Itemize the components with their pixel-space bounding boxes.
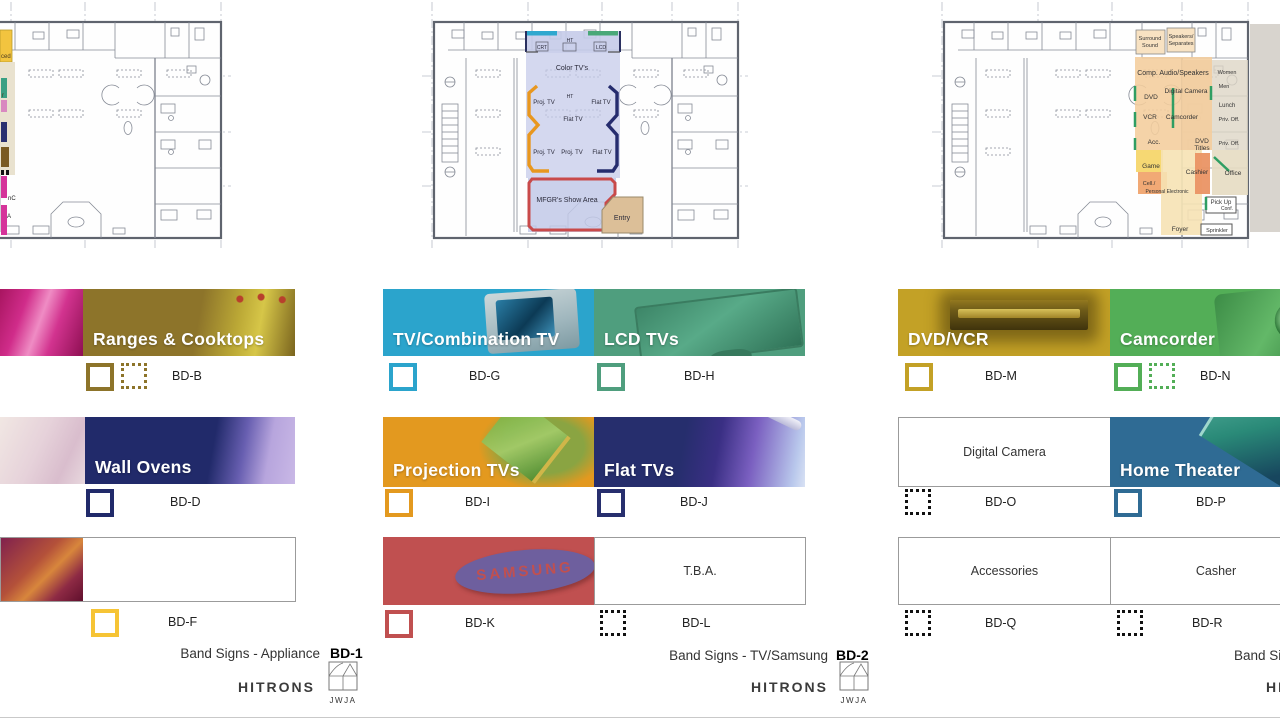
band-title: TV/Combination TV [393,329,559,350]
swatch-solid-bd-n [1114,363,1142,391]
lcd-band-body: LCD TVs [594,289,805,356]
plan-label: MFGR's Show Area [536,197,597,204]
band-sign-dvd-vcr: DVD/VCR [898,289,1110,356]
swatch-dotted-bd-o [905,489,931,515]
plan-label: DVD [1195,138,1209,145]
plan-label: Separates [1168,41,1193,47]
band-title: Ranges & Cooktops [93,329,264,350]
plan-label: r [2,93,4,99]
samsung-band-body: SAMSUNG [383,537,594,605]
band-sign-casher: Casher [1110,537,1280,605]
hitrons-logotype-clipped: HI [1266,679,1280,695]
swatch-solid-bd-p [1114,489,1142,517]
plan-label: Color TV's [556,65,589,72]
ranges-photo [0,289,83,356]
band-sign-blank [0,537,296,602]
swatch-solid-bd-k [385,610,413,638]
band-code: BD-J [680,495,708,509]
dvd-player-photo [950,300,1088,330]
hitrons-logotype: HITRONS [751,679,828,695]
dishwasher-photo [0,537,83,602]
swatch-solid-bd-b [86,363,114,391]
plan-label: DVD [1144,94,1158,101]
swatch-solid-bd-f [91,609,119,637]
jwja-logo-mark [328,661,358,691]
band-code: BD-B [172,369,202,383]
plan-label: Game [1142,163,1160,170]
plan-label: Lunch [1219,103,1235,109]
sheet-title-tv-samsung: Band Signs - TV/Samsung [600,648,828,663]
jwja-logo-mark [839,661,869,691]
band-sign-wall-ovens: Wall Ovens [0,417,295,484]
swatch-solid-bd-m [905,363,933,391]
oven-control-photo [0,417,85,484]
swatch-dotted-bd-l [600,610,626,636]
plan-label: Digital Camera [1165,88,1208,95]
projection-band-body: Projection TVs [383,417,594,487]
plan-label: Speakers/ [1169,34,1194,40]
band-sign-ranges-cooktops: Ranges & Cooktops [0,289,295,356]
band-sign-tba: T.B.A. [594,537,806,605]
swatch-dotted-bd-b [121,363,147,389]
band-title: Projection TVs [393,460,520,481]
band-code: BD-O [985,495,1016,509]
swatch-dotted-bd-n [1149,363,1175,389]
band-sign-digital-camera: Digital Camera [898,417,1111,487]
plan-label: Office [1225,170,1242,177]
band-title: Flat TVs [604,460,674,481]
sheet-bottom-rule [0,717,1280,718]
band-code: BD-K [465,616,495,630]
plan-label: Flat TV [591,100,610,106]
band-code: BD-I [465,495,490,509]
plan-label: A [7,214,11,220]
samsung-logo-text: SAMSUNG [476,559,575,584]
plan-label: Men [1219,84,1230,90]
plan-label: LCD [596,45,606,51]
sheet-title-appliance: Band Signs - Appliance [0,646,320,661]
band-title: Wall Ovens [95,457,192,478]
floor-plan-appliance: ced r nC A [0,0,237,265]
tv-comb-band-body: TV/Combination TV [383,289,594,356]
camcorder-photo [1214,289,1280,356]
plan-label: Acc. [1148,139,1161,146]
flat-band-body: Flat TVs [594,417,805,487]
tba-label: T.B.A. [595,538,805,604]
plan-label: Foyer [1172,226,1189,233]
band-code: BD-H [684,369,715,383]
ranges-band-body: Ranges & Cooktops [83,289,295,356]
sheet-title-av-clipped: Band Sig [1234,648,1280,663]
plan-label: VCR [1143,114,1157,121]
samsung-logo: SAMSUNG [453,544,594,599]
plan-label: Titles [1194,145,1210,152]
digital-camera-label: Digital Camera [899,418,1110,486]
band-code: BD-N [1200,369,1231,383]
plan-label: Proj. TV [533,150,555,156]
floor-plan-av: Surround Sound Speakers/ Separates Comp.… [930,0,1280,265]
band-title: Home Theater [1120,460,1240,481]
band-sign-samsung: SAMSUNG [383,537,594,605]
swatch-solid-bd-i [385,489,413,517]
plan-label: Flat TV [563,117,582,123]
swatch-solid-bd-h [597,363,625,391]
band-code: BD-M [985,369,1017,383]
plan-label: ced [1,54,11,60]
band-sign-projection-tvs: Projection TVs [383,417,594,487]
plan-label: Sound [1142,43,1158,49]
home-theater-band-body: Home Theater [1110,417,1280,487]
band-code: BD-D [170,495,201,509]
plan-label: Priv. Off. [1219,117,1240,123]
jwja-logo: JWJA [326,661,360,705]
sheet-code-appliance: BD-1 [330,645,363,661]
band-sign-lcd-tvs: LCD TVs [594,289,805,356]
plan-label: Personal Electronic [1145,189,1189,195]
band-code: BD-G [469,369,500,383]
plan-label: Surround [1139,36,1162,42]
band-code: BD-P [1196,495,1226,509]
band-title: LCD TVs [604,329,679,350]
plan-label: Proj. TV [533,100,555,106]
band-sign-camcorder: Camcorder [1110,289,1280,356]
band-code: BD-F [168,615,197,629]
swatch-dotted-bd-q [905,610,931,636]
band-code: BD-R [1192,616,1223,630]
plan-label: Proj. TV [561,150,583,156]
plan-label: Priv. Off. [1219,141,1240,147]
jwja-logo-text: JWJA [837,696,871,705]
band-code: BD-Q [985,616,1016,630]
casher-label: Casher [1111,538,1280,604]
plan-label: Entry [614,215,631,222]
hitrons-logotype: HITRONS [238,679,315,695]
plan-label: HT [567,38,574,44]
jwja-logo-text: JWJA [326,696,360,705]
band-sign-flat-tvs: Flat TVs [594,417,805,487]
band-title: Camcorder [1120,329,1215,350]
plan-label: CRT [537,45,547,51]
swatch-solid-bd-d [86,489,114,517]
jwja-logo: JWJA [837,661,871,705]
swatch-solid-bd-j [597,489,625,517]
band-sign-home-theater: Home Theater [1110,417,1280,487]
signage-plan-sheet: { "plans": [ { "name": "floor-plan-appli… [0,0,1280,720]
accessories-label: Accessories [899,538,1110,604]
plan-label: Cashier [1186,169,1209,176]
plan-label: Conf. [1221,206,1233,212]
floor-plan-tv: HT CRT LCD Color TV's Proj. TV HT Flat T… [420,0,750,265]
swatch-dotted-bd-r [1117,610,1143,636]
plan-label: Sprinkler [1206,228,1228,234]
plan-label: Camcorder [1166,114,1199,121]
plan-label: Cell./ [1143,181,1156,187]
plan-label: Comp. Audio/Speakers [1137,70,1209,77]
band-sign-accessories: Accessories [898,537,1111,605]
swatch-solid-bd-g [389,363,417,391]
wall-ovens-band-body: Wall Ovens [85,417,295,484]
plan-label: Women [1218,70,1237,76]
plan-label: nC [8,196,16,202]
camcorder-band-body: Camcorder [1110,289,1280,356]
band-code: BD-L [682,616,710,630]
dvd-vcr-band-body: DVD/VCR [898,289,1110,356]
band-sign-tv-combination: TV/Combination TV [383,289,594,356]
plan-label: Flat TV [592,150,611,156]
band-title: DVD/VCR [908,329,989,350]
plan-label: HT [567,94,574,100]
flat-tv-photo [700,417,803,432]
